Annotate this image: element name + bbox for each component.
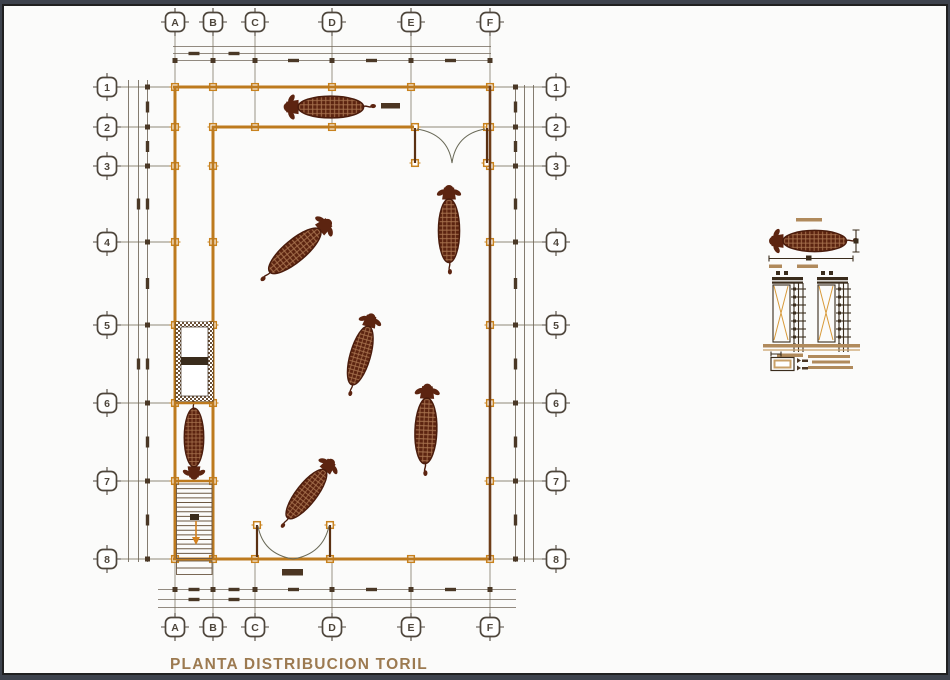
dimension-tick [409, 58, 414, 63]
drawing-title: PLANTA DISTRIBUCION TORIL [170, 656, 428, 673]
note-bar-3 [808, 366, 853, 369]
dimension-dash [288, 59, 299, 62]
post-cap-bolt [776, 271, 780, 275]
dimension-dash [514, 141, 517, 152]
post-cap-bar [772, 277, 803, 280]
rail-node [838, 320, 841, 323]
ground-line [763, 344, 860, 348]
bubble-label: 8 [104, 554, 110, 566]
dimension-tick [513, 85, 518, 90]
bubble-label: 2 [104, 122, 110, 134]
drawing-sheet [3, 5, 947, 674]
dimension-tick [253, 587, 258, 592]
dimension-dash [366, 588, 377, 591]
post-cap-bar [817, 277, 848, 280]
dimension-dash [146, 102, 149, 113]
post-cap-bolt [821, 271, 825, 275]
floor-plan-drawing: AABBCCDDEEFF1122334455667788 [0, 0, 950, 680]
dimension-tick [330, 587, 335, 592]
post-cap-bolt [784, 271, 788, 275]
bubble-label: E [407, 622, 414, 634]
rail-node [793, 296, 796, 299]
dimension-tick [145, 323, 150, 328]
dimension-tick [409, 587, 414, 592]
dimension-dash [189, 588, 200, 591]
dimension-tick [145, 85, 150, 90]
chute-hatch-right [208, 322, 213, 401]
dimension-tick [513, 125, 518, 130]
dimension-dash [514, 102, 517, 113]
dimension-dash [229, 52, 240, 55]
bubble-label: 6 [553, 398, 559, 410]
dimension-dash [229, 588, 240, 591]
bubble-label: C [251, 17, 259, 29]
dimension-tick [145, 479, 150, 484]
dimension-tick [145, 164, 150, 169]
rail-node [838, 328, 841, 331]
bubble-label: D [328, 622, 336, 634]
dimension-tick [513, 164, 518, 169]
bubble-label: D [328, 17, 336, 29]
cad-viewport: AABBCCDDEEFF1122334455667788 [0, 0, 950, 680]
detail-dash-2 [797, 265, 818, 269]
bubble-label: B [209, 622, 217, 634]
bubble-label: F [487, 622, 494, 634]
dimension-tick [513, 479, 518, 484]
bubble-label: 5 [553, 320, 559, 332]
dimension-dash [445, 588, 456, 591]
rail-node [793, 336, 796, 339]
dimension-tick [211, 58, 216, 63]
dimension-dash [189, 52, 200, 55]
dimension-tick [253, 58, 258, 63]
rail-node [838, 288, 841, 291]
bubble-label: 8 [553, 554, 559, 566]
dimension-dash [146, 515, 149, 526]
dimension-tick [513, 401, 518, 406]
dimension-dash [146, 278, 149, 289]
dimension-dash [146, 359, 149, 370]
dimension-dash [514, 199, 517, 210]
bubble-label: 5 [104, 320, 110, 332]
dimension-dash [146, 437, 149, 448]
dimension-dash [366, 59, 377, 62]
bubble-label: 2 [553, 122, 559, 134]
dimension-dash [288, 588, 299, 591]
rail-node [793, 288, 796, 291]
bubble-label: A [171, 17, 179, 29]
dimension-dash [146, 199, 149, 210]
dimension-dash [189, 598, 200, 601]
dimension-tick [145, 401, 150, 406]
rail-node [838, 296, 841, 299]
rail-node [793, 304, 796, 307]
chute-gate [181, 357, 208, 365]
dimension-dash [514, 437, 517, 448]
dimension-tick [513, 323, 518, 328]
bubble-label: 6 [104, 398, 110, 410]
dimension-tick [488, 58, 493, 63]
bubble-label: 1 [104, 82, 110, 94]
dimension-tick [513, 557, 518, 562]
feeder-block-top [381, 103, 400, 109]
bubble-label: 3 [104, 161, 110, 173]
bubble-label: C [251, 622, 259, 634]
bubble-label: 3 [553, 161, 559, 173]
section-dash-2 [802, 367, 808, 370]
bubble-label: E [407, 17, 414, 29]
stair-landing-mark [190, 514, 199, 520]
rail-node [838, 304, 841, 307]
chute-hatch-top [176, 322, 213, 327]
bubble-label: 4 [104, 237, 110, 249]
rail-node [838, 336, 841, 339]
rail-node [793, 320, 796, 323]
dimension-dash [146, 141, 149, 152]
rail-node [793, 328, 796, 331]
dimension-dash [445, 59, 456, 62]
bubble-label: 4 [553, 237, 559, 249]
dimension-tick [330, 58, 335, 63]
bubble-label: 1 [553, 82, 559, 94]
detail-dash-1 [769, 265, 782, 269]
bubble-label: A [171, 622, 179, 634]
detail-dim-h-tick [806, 256, 812, 261]
dimension-dash [514, 278, 517, 289]
bubble-label: B [209, 17, 217, 29]
detail-dim-v-tick [854, 239, 859, 244]
rail-node [793, 312, 796, 315]
dimension-tick [488, 587, 493, 592]
chute-hatch-left [176, 322, 181, 401]
feeder-block-bottom [282, 569, 303, 576]
bubble-label: F [487, 17, 494, 29]
dimension-tick [211, 587, 216, 592]
dimension-tick [145, 240, 150, 245]
note-bar-2 [812, 361, 850, 364]
detail-label-bar [796, 218, 822, 222]
dimension-dash [514, 359, 517, 370]
dimension-tick [513, 240, 518, 245]
dimension-dash [137, 199, 140, 210]
post-cap-bolt [829, 271, 833, 275]
note-bar-1 [808, 355, 850, 358]
dimension-dash [229, 598, 240, 601]
section-dash-1 [802, 360, 808, 363]
rail-node [838, 312, 841, 315]
dimension-tick [173, 58, 178, 63]
chute-hatch-bottom [176, 396, 213, 401]
dimension-dash [514, 515, 517, 526]
bubble-label: 7 [553, 476, 559, 488]
bubble-label: 7 [104, 476, 110, 488]
dimension-tick [145, 125, 150, 130]
dimension-dash [137, 359, 140, 370]
dimension-tick [145, 557, 150, 562]
dimension-tick [173, 587, 178, 592]
